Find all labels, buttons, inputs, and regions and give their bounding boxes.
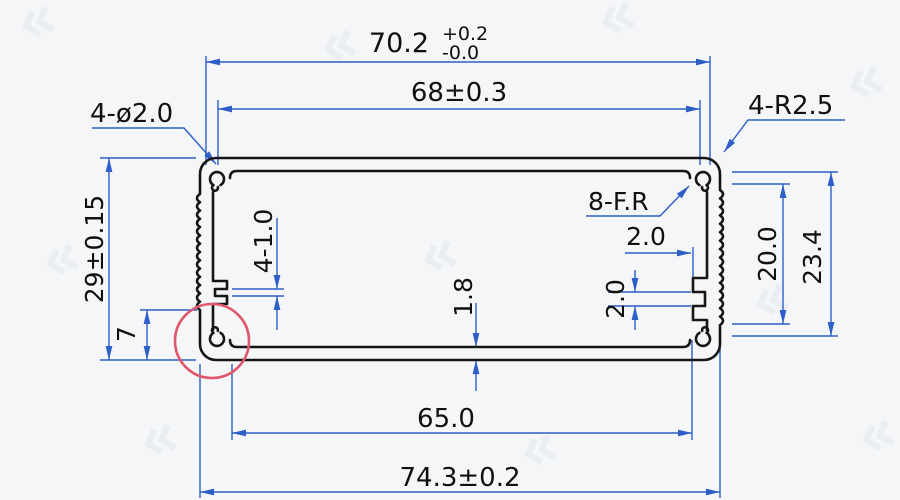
leader-lines bbox=[92, 120, 845, 216]
overall-height-label: 29±0.15 bbox=[80, 195, 109, 303]
screw-boss-bottom-left bbox=[210, 327, 224, 346]
rib-pitch-label: 2.0 bbox=[601, 279, 630, 319]
groove-offset-label: 7 bbox=[112, 326, 141, 342]
leader-corner-radius bbox=[724, 120, 845, 152]
outer-height-right-label: 23.4 bbox=[798, 229, 827, 285]
drawing-canvas: 70.2 +0.2 -0.0 68±0.3 4-ø2.0 4-R2.5 8-F.… bbox=[0, 0, 900, 500]
wall-thickness-label: 1.8 bbox=[449, 277, 478, 317]
fillet-radius-label: 8-F.R bbox=[588, 187, 649, 216]
bottom-width-label: 74.3±0.2 bbox=[399, 463, 520, 493]
inner-bottom-width-label: 65.0 bbox=[417, 404, 475, 434]
corner-radius-label: 4-R2.5 bbox=[748, 91, 833, 121]
profile-inner-left-wall-slots bbox=[213, 192, 227, 330]
screw-boss-top-left bbox=[210, 172, 224, 191]
dim-inner-top-width-label: 68±0.3 bbox=[411, 78, 507, 108]
screw-boss-bottom-right bbox=[696, 327, 710, 346]
dim-top-width-label: 70.2 +0.2 -0.0 bbox=[369, 17, 496, 64]
profile-inner-top-wall bbox=[230, 171, 690, 178]
left-slot-label: 4-1.0 bbox=[249, 209, 278, 274]
profile-inner-right-wall-slots bbox=[693, 192, 707, 330]
extrusion-drawing: 70.2 +0.2 -0.0 68±0.3 4-ø2.0 4-R2.5 8-F.… bbox=[0, 0, 900, 500]
screw-boss-top-right bbox=[696, 172, 710, 191]
profile-inner-bottom-wall bbox=[230, 340, 690, 347]
corner-holes-label: 4-ø2.0 bbox=[90, 99, 173, 129]
rib-depth-label: 2.0 bbox=[626, 222, 666, 251]
inner-height-right-label: 20.0 bbox=[753, 226, 782, 282]
